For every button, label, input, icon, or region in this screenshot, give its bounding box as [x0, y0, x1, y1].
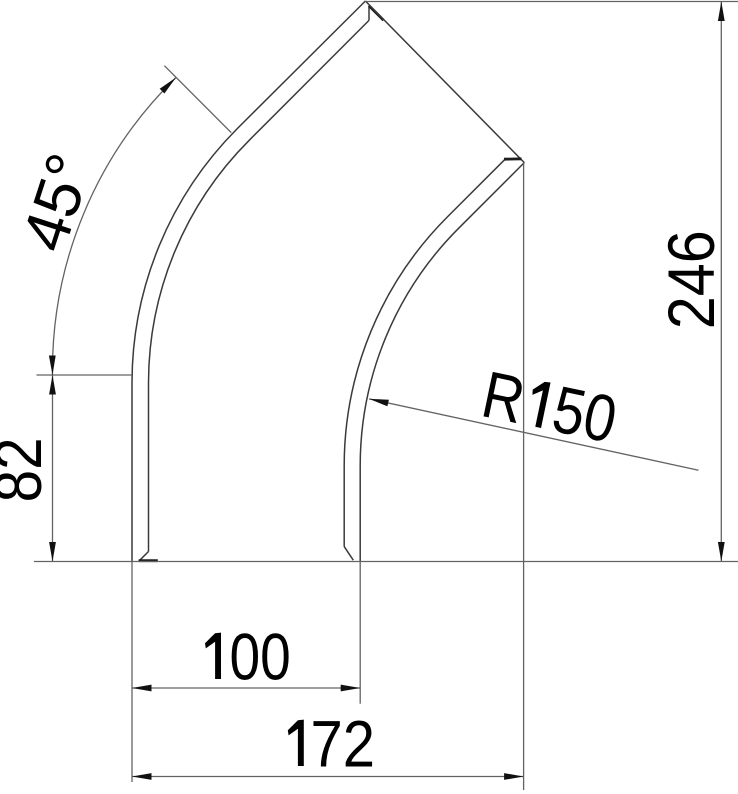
svg-text:00: 00: [230, 620, 291, 694]
svg-text:82: 82: [0, 437, 55, 502]
svg-text:246: 246: [654, 230, 728, 329]
svg-text:72: 72: [311, 706, 376, 780]
